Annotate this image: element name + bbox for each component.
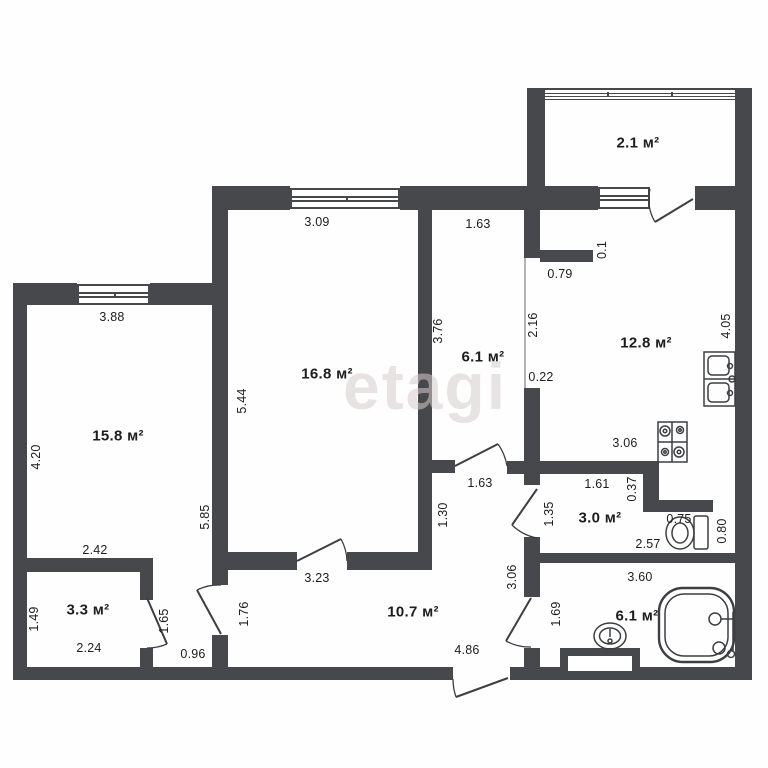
dim-corridor-top: 1.63 xyxy=(465,218,490,231)
wall-bedroom-top-left xyxy=(13,283,77,305)
vent-niche-inner xyxy=(568,656,632,671)
dim-kitchen-right: 4.05 xyxy=(720,313,733,338)
dim-hall-right: 3.06 xyxy=(506,564,519,589)
wall-living-bottom-a xyxy=(212,552,297,570)
room-label-bathroom: 6.1 м² xyxy=(616,609,659,624)
door-balcony xyxy=(649,189,693,222)
window-living xyxy=(290,188,400,209)
wall-corridor-kitchen-a xyxy=(524,210,540,258)
wall-bottom-a xyxy=(13,667,453,680)
dim-storage-bottom: 2.24 xyxy=(76,642,101,655)
window-kitchen xyxy=(598,187,650,209)
door-living xyxy=(297,539,347,561)
wall-storage-right-stub xyxy=(140,648,153,667)
wall-storage-right-upper xyxy=(140,572,153,600)
kitchen-sink-icon xyxy=(704,352,735,406)
wall-corridor-stub xyxy=(432,460,455,473)
dim-kitchen-bottom: 3.06 xyxy=(612,437,637,450)
dim-storage-left: 1.49 xyxy=(28,606,41,631)
wall-bedroom-bottom xyxy=(13,558,153,572)
wall-right-outer xyxy=(735,88,752,680)
wall-toilet-bottom xyxy=(540,553,752,563)
dim-bath-top: 3.60 xyxy=(627,571,652,584)
room-label-balcony: 2.1 м² xyxy=(617,136,660,151)
room-label-toilet: 3.0 м² xyxy=(579,511,622,526)
wall-hall-bath-a xyxy=(524,537,540,597)
dim-kitchen-opening: 2.16 xyxy=(527,312,540,337)
window-bedroom xyxy=(77,284,150,305)
dim-kitchen-stub-t: 0.1 xyxy=(596,241,609,259)
watermark: etagi xyxy=(343,348,507,424)
dim-bedroom-left: 4.20 xyxy=(30,444,43,469)
dim-hall-door: 1.63 xyxy=(467,477,492,490)
door-toilet xyxy=(512,489,537,538)
wall-balcony-bottom-right xyxy=(695,186,735,210)
dim-bath-left: 1.69 xyxy=(550,601,563,626)
dim-living-window: 3.09 xyxy=(304,216,329,229)
dim-wc-width: 0.75 xyxy=(666,513,691,526)
room-label-hallway: 10.7 м² xyxy=(387,605,439,620)
dim-corridor-left: 3.76 xyxy=(432,318,445,343)
dim-bedroom-bottom: 2.42 xyxy=(82,544,107,557)
dim-wc-niche: 0.80 xyxy=(716,518,729,543)
door-corridor xyxy=(455,444,507,466)
door-passage xyxy=(197,585,221,634)
wall-kitchen-stub xyxy=(540,250,593,262)
door-bathroom xyxy=(506,598,531,647)
dim-living-door: 3.23 xyxy=(304,572,329,585)
balcony-glazing xyxy=(545,88,735,100)
dim-toilet-step: 0.37 xyxy=(626,476,639,501)
wall-divider-bedroom-living xyxy=(212,186,228,585)
wall-corridor-kitchen-b xyxy=(524,388,540,485)
dim-opening-offset: 0.22 xyxy=(528,371,553,384)
wall-toilet-step-h xyxy=(659,500,713,512)
dim-hall-left: 1.76 xyxy=(238,601,251,626)
dim-toilet-bottom: 2.57 xyxy=(635,538,660,551)
wall-top-a xyxy=(212,186,290,210)
dim-hall-bottom: 4.86 xyxy=(454,644,479,657)
dim-passage-width: 0.96 xyxy=(180,648,205,661)
dim-toilet-top: 1.61 xyxy=(584,478,609,491)
door-entrance xyxy=(453,678,508,697)
room-label-storage: 3.3 м² xyxy=(67,603,110,618)
dim-hall-upper-left: 1.30 xyxy=(437,502,450,527)
dim-storage-door: 1.65 xyxy=(158,608,171,633)
wall-left-outer xyxy=(13,283,27,680)
wall-toilet-step-v xyxy=(643,461,659,512)
bathtub-icon xyxy=(659,588,735,662)
wall-balcony-bottom-left xyxy=(527,186,598,210)
dim-bedroom-top: 3.88 xyxy=(99,311,124,324)
wall-top-b xyxy=(400,186,527,210)
wall-hall-bath-b xyxy=(524,648,540,680)
stove-icon xyxy=(658,422,687,462)
dim-bedroom-right: 5.85 xyxy=(199,504,212,529)
dim-living-left: 5.44 xyxy=(236,388,249,413)
room-label-bedroom: 15.8 м² xyxy=(92,429,144,444)
dim-kitchen-stub-w: 0.79 xyxy=(547,268,572,281)
room-label-kitchen: 12.8 м² xyxy=(620,336,672,351)
floor-plan: 2.1 м² 12.8 м² 6.1 м² 16.8 м² 15.8 м² 3.… xyxy=(0,0,768,768)
washbasin-icon xyxy=(594,623,626,649)
wall-balcony-left-post xyxy=(527,88,545,186)
dim-toilet-left: 1.35 xyxy=(543,501,556,526)
